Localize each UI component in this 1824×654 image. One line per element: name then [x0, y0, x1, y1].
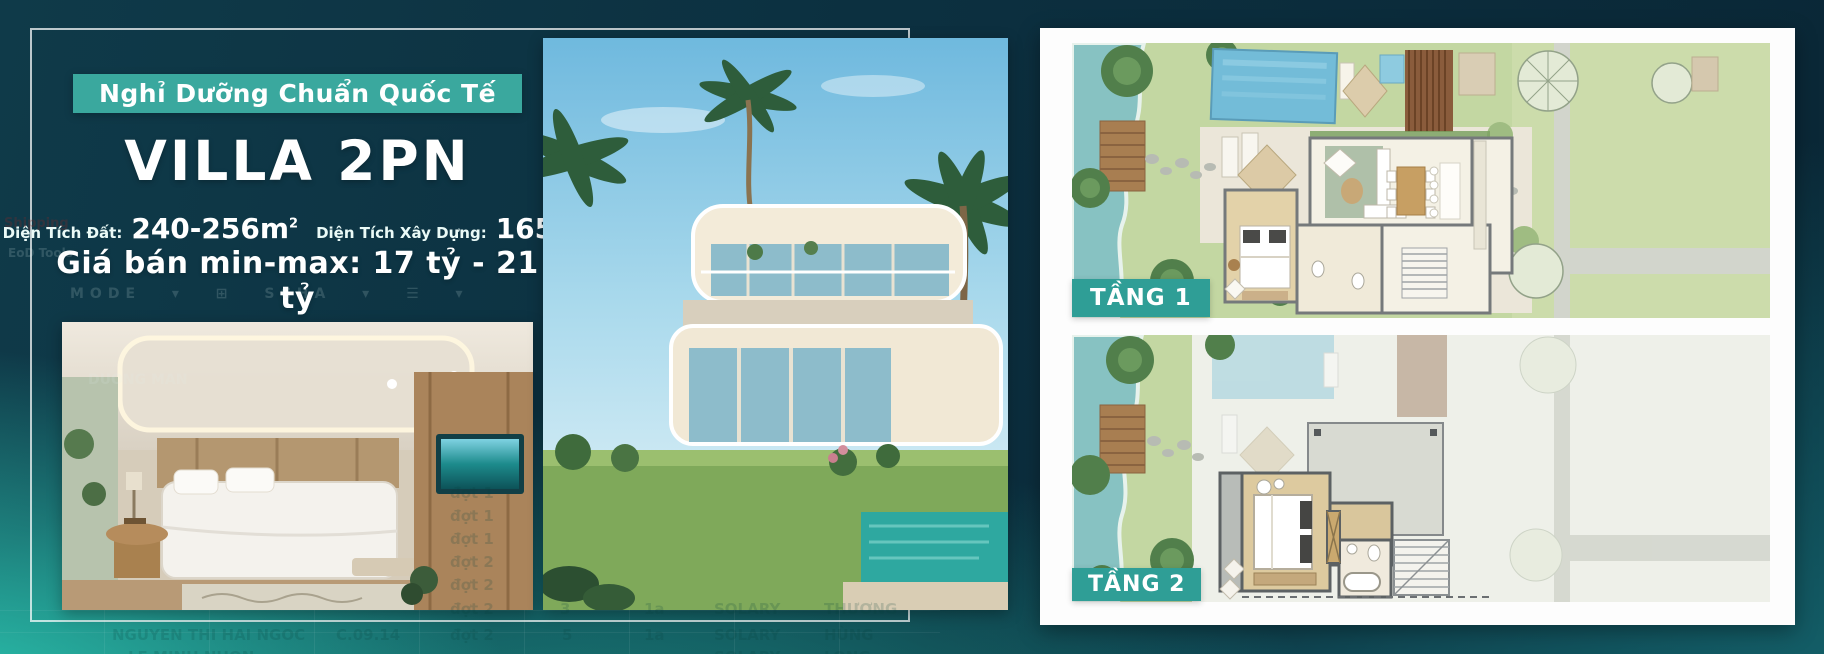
ghost-cell: C.09.14: [336, 626, 400, 644]
floorplan-level2: [1072, 335, 1770, 602]
ghost-cell: đợt 1: [450, 484, 494, 502]
floor2-label: TẦNG 2: [1072, 568, 1201, 601]
ghost-cell: 3: [560, 600, 570, 618]
ghost-cell: SOLARY: [714, 626, 780, 644]
ghost-cell: SOLARY: [714, 600, 780, 618]
floorplan-level1: [1072, 43, 1770, 318]
villa-photo-art: [543, 38, 1008, 610]
ghost-cell: đợt 1: [450, 530, 494, 548]
ghost-cell-name: NGUYEN THI HAI NGOC: [112, 626, 305, 644]
floor1-label: TẦNG 1: [1072, 279, 1210, 317]
ghost-cell: LONG: [824, 648, 871, 654]
floorplan-level2-art: [1072, 335, 1770, 602]
ghost-cell: đợt 2: [450, 576, 494, 594]
villa-title: VILLA 2PN: [62, 129, 533, 193]
floorplan-level1-art: [1072, 43, 1770, 318]
price-line: Giá bán min-max: 17 tỷ - 21 tỷ: [42, 246, 553, 316]
ghost-cell: 1a: [644, 600, 665, 618]
ghost-cell: 5: [562, 626, 572, 644]
build-area-label: Diện Tích Xây Dựng:: [316, 224, 487, 242]
ghost-menu-item: EoD Tools: [8, 246, 73, 260]
info-column: Nghỉ Dưỡng Chuẩn Quốc Tế VILLA 2PN: [62, 0, 533, 193]
villa-exterior-photo: [543, 38, 1008, 610]
tagline-badge: Nghỉ Dưỡng Chuẩn Quốc Tế: [73, 74, 522, 113]
ghost-cell: đợt 2: [450, 626, 494, 644]
villa-promo-banner: Nghỉ Dưỡng Chuẩn Quốc Tế VILLA 2PN Diện …: [0, 0, 1824, 654]
land-area-value: 240-256m2: [131, 212, 298, 245]
ghost-toolbar: MODE ▾ ⊞ SCHA ▾ ☰ ▾: [70, 286, 469, 302]
ghost-cell: đợt 2: [450, 600, 494, 618]
ghost-cell: đợt 1: [450, 507, 494, 525]
ghost-cell: SOLARY: [714, 648, 780, 654]
ghost-cell: đợt 2: [450, 553, 494, 571]
ghost-cell: 1a: [644, 626, 665, 644]
ghost-menu-item: Shipping: [4, 216, 69, 231]
area-stats-row: Diện Tích Đất: 240-256m2 Diện Tích Xây D…: [62, 212, 533, 245]
ghost-cell: THƯƠNG: [824, 600, 897, 618]
floorplan-card: TẦNG 1 TẦNG 2: [1040, 28, 1795, 625]
ghost-cell: HÙNG: [824, 626, 874, 644]
ghost-cell-name: DUONG MAN: [88, 372, 187, 388]
ghost-cell-name: LE MINH NHON: [128, 648, 254, 654]
